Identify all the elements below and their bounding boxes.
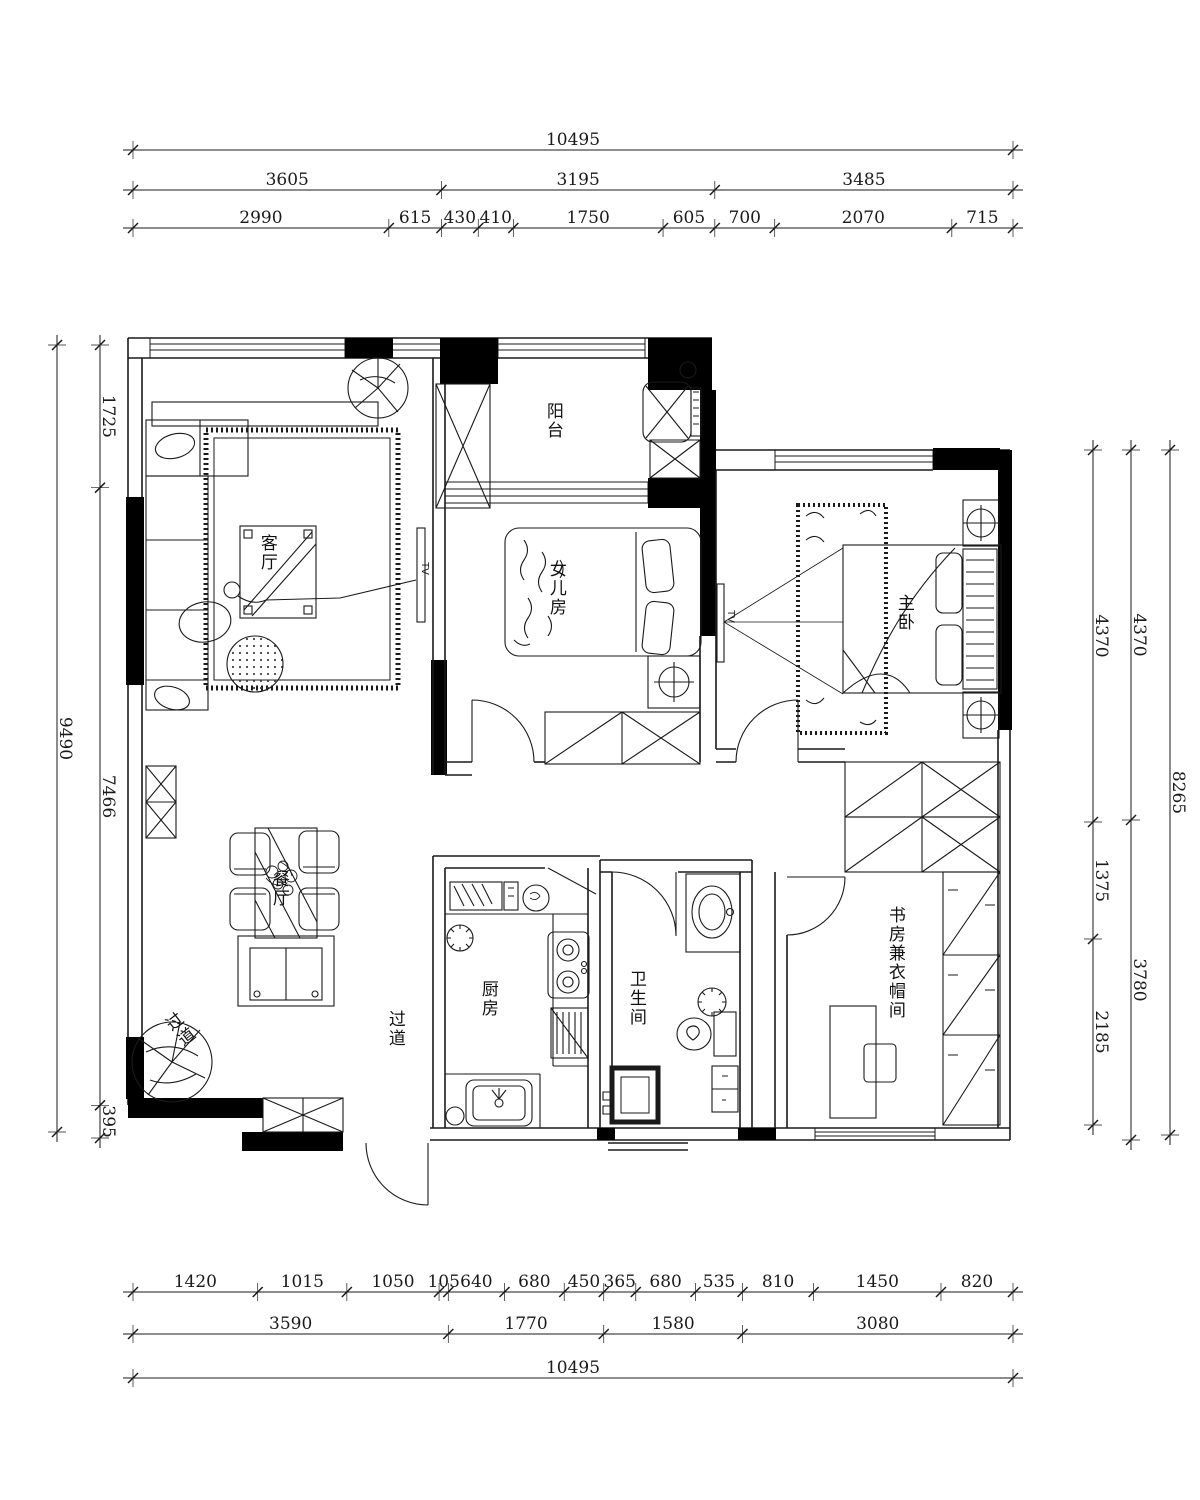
windows [150, 338, 935, 1140]
svg-text:9490: 9490 [55, 717, 75, 760]
svg-text:10495: 10495 [546, 130, 600, 150]
tv-sight-lines [724, 548, 843, 694]
microwave [450, 882, 518, 910]
svg-text:3080: 3080 [856, 1314, 899, 1334]
pouf [227, 636, 283, 692]
master-room-furniture [717, 500, 1001, 738]
vanity-basin [686, 874, 740, 952]
dining-chair [299, 888, 339, 930]
room-label-balcony: 阳台 [544, 402, 562, 440]
study-closet-column [943, 872, 1000, 1125]
dim-top-total: 10495 [123, 130, 1023, 159]
desk [830, 1006, 896, 1118]
svg-text:1420: 1420 [174, 1272, 217, 1292]
svg-text:640: 640 [460, 1272, 492, 1292]
corridor-wardrobe [545, 712, 700, 764]
gas-stove [548, 932, 589, 998]
dim-top-inner: 299061543041017506057002070715 [123, 208, 1023, 237]
svg-text:615: 615 [399, 208, 431, 228]
closet-row-2 [845, 817, 1000, 872]
dim-right-inner: 437013752185 [1084, 440, 1111, 1135]
svg-text:4370: 4370 [1091, 614, 1111, 657]
study-furniture [830, 762, 1000, 1125]
svg-text:1770: 1770 [504, 1314, 547, 1334]
svg-text:1580: 1580 [651, 1314, 694, 1334]
dim-bottom-total: 10495 [123, 1358, 1023, 1387]
room-label-kitchen: 厨房 [479, 980, 497, 1018]
svg-text:715: 715 [966, 208, 998, 228]
svg-text:3780: 3780 [1129, 958, 1149, 1001]
svg-text:3195: 3195 [557, 170, 600, 190]
svg-text:2185: 2185 [1091, 1010, 1111, 1053]
svg-text:410: 410 [480, 208, 512, 228]
tv-annotation-master: TV [725, 610, 736, 623]
svg-text:680: 680 [649, 1272, 681, 1292]
tv-annotation-living: TV [419, 562, 430, 575]
daughter-door-arc [472, 700, 534, 762]
master-nightstand-bottom [963, 692, 999, 738]
svg-text:680: 680 [518, 1272, 550, 1292]
rice-cooker [523, 885, 549, 911]
master-door-arc [736, 700, 798, 762]
room-label-bath: 卫生间 [627, 970, 645, 1027]
svg-text:1015: 1015 [281, 1272, 324, 1292]
wall-shelf [152, 402, 378, 426]
svg-text:2070: 2070 [842, 208, 885, 228]
room-label-corridor: 过道 [386, 1010, 404, 1048]
daughter-nightstand [648, 656, 700, 708]
wall-clock [447, 925, 473, 951]
svg-text:1375: 1375 [1091, 859, 1111, 902]
svg-text:395: 395 [98, 1105, 118, 1137]
living-room-furniture [146, 358, 425, 838]
study-door-arc [787, 877, 845, 935]
svg-text:450: 450 [568, 1272, 600, 1292]
daughter-bed [505, 528, 701, 656]
svg-text:3485: 3485 [842, 170, 885, 190]
toilet [677, 1012, 736, 1056]
daughter-room-furniture [505, 528, 701, 764]
svg-text:105: 105 [427, 1272, 459, 1292]
svg-text:820: 820 [961, 1272, 993, 1292]
coffee-table [240, 526, 316, 618]
svg-text:365: 365 [604, 1272, 636, 1292]
svg-text:7466: 7466 [98, 775, 118, 818]
sideboard [238, 936, 334, 1006]
svg-text:3590: 3590 [269, 1314, 312, 1334]
svg-text:1725: 1725 [98, 395, 118, 438]
room-label-daughter: 女儿房 [547, 560, 565, 617]
tv-panel-master [717, 584, 724, 662]
svg-text:10495: 10495 [546, 1358, 600, 1378]
dim-right-mid: 43703780 [1122, 440, 1149, 1150]
svg-text:4370: 4370 [1129, 613, 1149, 656]
svg-text:2990: 2990 [239, 208, 282, 228]
shower-tray [612, 1068, 658, 1122]
room-label-dining: 餐厅 [270, 870, 288, 908]
balcony-hatch [650, 440, 700, 478]
kitchen-fixtures [445, 882, 589, 1128]
bath-cabinet [712, 1066, 738, 1112]
dim-right-total: 8265 [1161, 440, 1188, 1145]
floor-plan-drawing: 10495 360531953485 299061543041017506057… [0, 0, 1200, 1500]
svg-text:1450: 1450 [856, 1272, 899, 1292]
bath-door-arc [612, 872, 676, 936]
tv-panel-living [417, 528, 425, 622]
svg-text:1750: 1750 [567, 208, 610, 228]
room-label-study: 书房兼衣帽间 [886, 906, 904, 1020]
svg-text:700: 700 [729, 208, 761, 228]
room-label-living: 客厅 [258, 534, 276, 572]
entry-cabinet [263, 1098, 343, 1132]
svg-text:810: 810 [762, 1272, 794, 1292]
svg-text:605: 605 [673, 208, 705, 228]
dim-bottom-inner: 1420101510501056406804503656805358101450… [123, 1272, 1023, 1301]
dim-top-mid: 360531953485 [123, 170, 1023, 199]
dim-bottom-mid: 3590177015803080 [123, 1314, 1023, 1343]
dining-chair [299, 831, 339, 873]
master-nightstand-top [963, 500, 999, 546]
radiator-box [146, 766, 176, 838]
svg-text:535: 535 [703, 1272, 735, 1292]
svg-text:3605: 3605 [266, 170, 309, 190]
svg-text:1050: 1050 [371, 1272, 414, 1292]
kitchen-sink [446, 1080, 532, 1126]
svg-text:8265: 8265 [1168, 771, 1188, 814]
master-rug [798, 505, 886, 733]
master-bed [843, 545, 1001, 693]
vent-grill [551, 1008, 588, 1058]
entry-door-arc [366, 1143, 428, 1205]
floor-plan-canvas: 10495 360531953485 299061543041017506057… [0, 0, 1200, 1500]
room-label-master: 主卧 [895, 594, 913, 632]
person-figure [224, 580, 416, 602]
svg-text:430: 430 [444, 208, 476, 228]
dining-chair [230, 888, 270, 930]
dining-furniture [230, 828, 339, 1006]
dim-left-inner: 17257466395 [91, 335, 118, 1148]
closet-row-1 [845, 762, 1000, 817]
dim-left-total: 9490 [48, 335, 75, 1142]
